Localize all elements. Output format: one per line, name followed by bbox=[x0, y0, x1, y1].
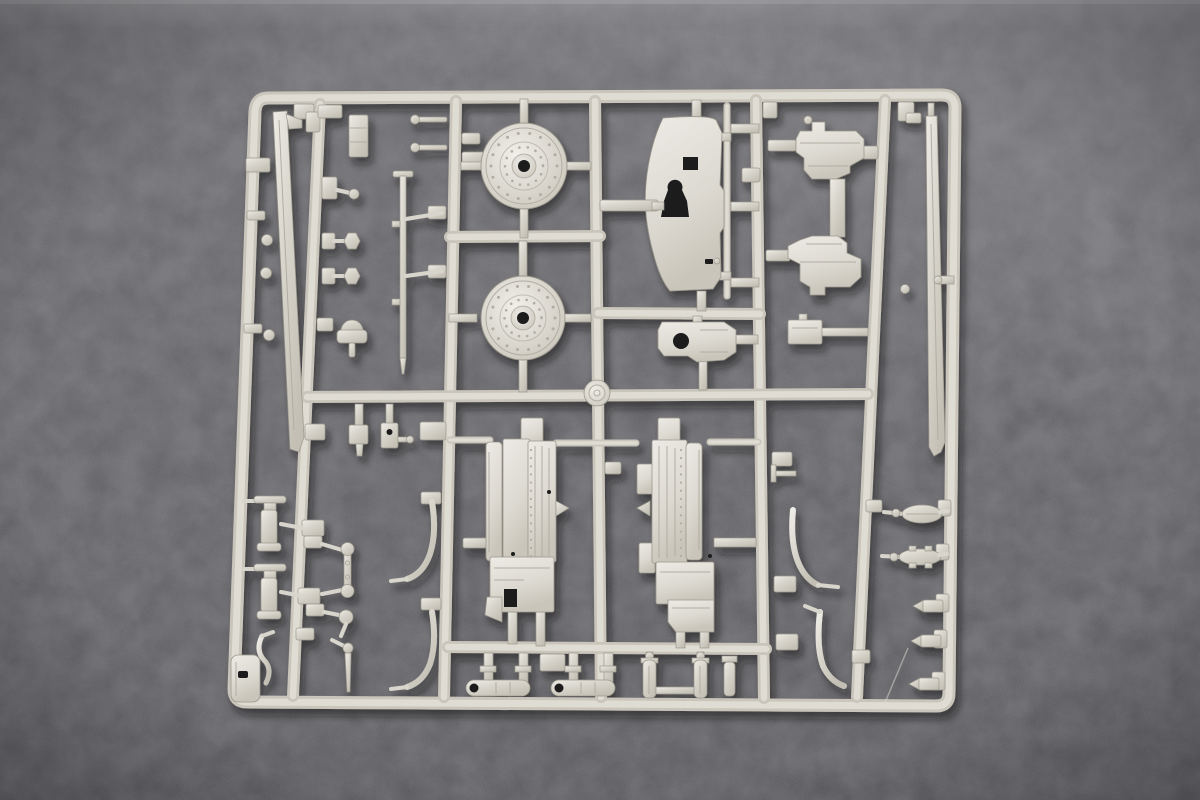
road-wheel-detail bbox=[449, 314, 477, 322]
gate-blocks-detail bbox=[742, 168, 760, 182]
oval-lens-detail bbox=[940, 511, 948, 512]
shock-cylinder-detail bbox=[257, 611, 281, 619]
block-fitting bbox=[349, 115, 368, 157]
ejector-nubs-detail bbox=[262, 235, 273, 246]
recoil-breech-assembly-detail bbox=[637, 464, 653, 494]
road-wheel-detail bbox=[518, 160, 530, 172]
corner-plate bbox=[231, 655, 260, 702]
gate-blocks-detail bbox=[463, 538, 487, 548]
open-end-tube-detail bbox=[565, 666, 581, 672]
gate-blocks-detail bbox=[302, 520, 324, 536]
turret-bracket-detail bbox=[658, 322, 736, 362]
internal-runners-detail bbox=[598, 313, 760, 314]
gun-shield-plate-detail bbox=[731, 278, 759, 287]
small-fitting-with-hole-detail bbox=[386, 404, 393, 425]
gun-shield-plate-detail bbox=[683, 157, 698, 170]
recoil-breech-assembly-detail bbox=[486, 442, 502, 561]
oval-lens-detail bbox=[939, 554, 947, 555]
recoil-breech-assembly-detail bbox=[503, 439, 530, 562]
round-head-pin-detail bbox=[417, 145, 447, 150]
oval-lens-detail bbox=[899, 549, 941, 565]
capped-cylinder-detail bbox=[724, 662, 735, 696]
gate-blocks-detail bbox=[318, 105, 342, 118]
hanging-post-detail bbox=[349, 425, 368, 444]
gate-blocks-detail bbox=[906, 113, 921, 123]
ejector-nubs-detail bbox=[261, 268, 272, 279]
recoil-breech-assembly-detail bbox=[504, 589, 517, 607]
road-wheel-detail bbox=[517, 312, 529, 324]
oval-lens-detail bbox=[892, 509, 900, 517]
small-fitting-with-hole-detail bbox=[381, 423, 398, 448]
hub-boss-disc bbox=[584, 380, 610, 406]
cleaning-rod-detail bbox=[392, 221, 400, 227]
stowage-box-detail bbox=[788, 320, 822, 344]
gate-blocks-detail bbox=[768, 140, 796, 151]
j-hook-rod-detail bbox=[391, 579, 407, 581]
gate-blocks-detail bbox=[304, 536, 322, 548]
block-fitting-detail bbox=[349, 115, 368, 157]
cleaning-rod-detail bbox=[400, 176, 406, 358]
round-head-pin-detail bbox=[417, 117, 447, 122]
ball-pin-bracket-detail bbox=[349, 189, 359, 199]
turret-bracket-detail bbox=[673, 333, 689, 349]
recoil-breech-assembly-detail bbox=[686, 443, 702, 560]
turret-bracket-detail bbox=[699, 360, 707, 390]
hanging-post-detail bbox=[355, 404, 363, 426]
recoil-breech-assembly-detail bbox=[676, 630, 685, 648]
gate-blocks-detail bbox=[866, 500, 882, 512]
gate-blocks-detail bbox=[763, 102, 777, 118]
road-wheel-detail bbox=[520, 206, 528, 238]
recoil-breech-assembly-detail bbox=[547, 490, 551, 494]
gate-blocks-detail bbox=[774, 576, 796, 592]
small-fitting-with-hole-detail bbox=[407, 436, 414, 443]
t-pin-detail bbox=[771, 465, 776, 482]
small-fitting-with-hole-detail bbox=[387, 429, 393, 435]
gate-blocks-detail bbox=[605, 462, 621, 474]
oval-lens-detail bbox=[909, 546, 916, 551]
recoil-breech-assembly-detail bbox=[708, 554, 712, 558]
j-hook-rod-detail bbox=[391, 687, 407, 689]
cone-tipped-cylinder-detail bbox=[923, 600, 943, 612]
shock-cylinder-detail bbox=[261, 510, 277, 544]
oval-lens-detail bbox=[925, 563, 932, 568]
cone-tipped-cylinder-detail bbox=[921, 635, 941, 647]
gate-blocks-detail bbox=[420, 422, 446, 440]
gate-blocks-detail bbox=[305, 424, 325, 440]
gate-blocks-detail bbox=[776, 634, 798, 650]
road-wheel-detail bbox=[519, 356, 527, 392]
open-end-tube-detail bbox=[555, 684, 564, 693]
bracket-runner-detail bbox=[830, 179, 845, 237]
gate-blocks-detail bbox=[852, 650, 870, 663]
gate-blocks-detail bbox=[462, 133, 480, 144]
mount-bracket-detail bbox=[804, 116, 812, 124]
cone-tipped-cylinder-detail bbox=[919, 678, 939, 690]
open-end-tube-detail bbox=[480, 666, 496, 672]
gate-blocks-detail bbox=[540, 654, 565, 671]
capped-cylinder-detail bbox=[722, 656, 737, 662]
barrel-half-right-detail bbox=[934, 276, 942, 284]
recoil-breech-assembly-detail bbox=[714, 538, 756, 547]
t-pin-detail bbox=[774, 471, 796, 476]
gate-blocks-detail bbox=[766, 250, 790, 261]
shock-cylinder-detail bbox=[254, 496, 286, 503]
bracket-runner bbox=[830, 179, 845, 237]
corner-plate-detail bbox=[231, 655, 260, 702]
shock-cylinder-detail bbox=[254, 564, 286, 571]
ejector-nubs-detail bbox=[264, 330, 275, 341]
oval-lens-detail bbox=[925, 546, 932, 551]
gate-blocks-detail bbox=[306, 604, 324, 616]
sprue-photo bbox=[0, 0, 1200, 800]
hub-boss-disc-detail bbox=[584, 380, 610, 406]
oval-lens-detail bbox=[890, 553, 898, 561]
gun-shield-plate-detail bbox=[731, 124, 759, 133]
twin-cylinder-link-detail bbox=[656, 687, 694, 694]
oval-lens-detail bbox=[909, 563, 916, 568]
gun-shield-plate-detail bbox=[600, 200, 658, 211]
gate-blocks-detail bbox=[421, 598, 441, 610]
gate-blocks-detail bbox=[246, 158, 270, 172]
road-wheel-detail bbox=[564, 162, 591, 170]
recoil-breech-assembly-detail bbox=[656, 562, 714, 604]
j-hook-rod-detail bbox=[818, 585, 838, 587]
gun-shield-plate-detail bbox=[652, 202, 664, 210]
dumbbell-link-detail bbox=[341, 543, 354, 556]
photo-stage bbox=[0, 0, 1200, 800]
round-head-pin-detail bbox=[411, 115, 420, 124]
hanging-post-detail bbox=[356, 444, 363, 456]
road-wheel-detail bbox=[563, 314, 591, 322]
recoil-breech-assembly-detail bbox=[536, 612, 545, 646]
internal-runners-detail bbox=[448, 647, 766, 649]
recoil-breech-assembly-detail bbox=[668, 600, 714, 632]
mushroom-vent-detail bbox=[349, 343, 355, 357]
ball-pin-bracket-detail bbox=[322, 177, 337, 199]
gun-shield-plate-detail bbox=[714, 258, 720, 264]
mushroom-vent-detail bbox=[337, 330, 367, 343]
ejector-nubs-detail bbox=[901, 285, 910, 294]
gate-blocks-detail bbox=[462, 152, 484, 163]
open-end-tube-detail bbox=[600, 666, 616, 672]
taper-pin-detail bbox=[343, 643, 353, 653]
gun-shield-plate-detail bbox=[731, 202, 759, 211]
open-end-tube-detail bbox=[470, 684, 479, 693]
turret-bracket-detail bbox=[736, 335, 758, 344]
dumbbell-link-detail bbox=[341, 585, 354, 598]
shock-cylinder-detail bbox=[257, 543, 281, 551]
capped-cylinder bbox=[722, 656, 737, 696]
gun-shield-plate-detail bbox=[705, 259, 713, 264]
gate-blocks-detail bbox=[772, 452, 792, 466]
barrel-half-right-detail bbox=[928, 103, 934, 117]
round-head-pin-detail bbox=[411, 143, 420, 152]
ball-knob-detail bbox=[339, 610, 353, 624]
open-end-tube-detail bbox=[515, 666, 531, 672]
road-wheel-detail bbox=[519, 241, 527, 279]
shock-cylinder-detail bbox=[261, 578, 277, 612]
recoil-breech-assembly-detail bbox=[508, 612, 517, 644]
recoil-breech-assembly-detail bbox=[511, 552, 515, 556]
cleaning-rod-detail bbox=[392, 299, 400, 305]
gate-blocks-detail bbox=[296, 628, 314, 640]
stowage-box-detail bbox=[820, 328, 868, 336]
gate-blocks-detail bbox=[247, 211, 265, 220]
corner-plate-detail bbox=[238, 671, 248, 678]
mushroom-vent-detail bbox=[317, 318, 333, 331]
gate-blocks-detail bbox=[244, 324, 262, 333]
gun-shield-plate-detail bbox=[697, 291, 706, 311]
